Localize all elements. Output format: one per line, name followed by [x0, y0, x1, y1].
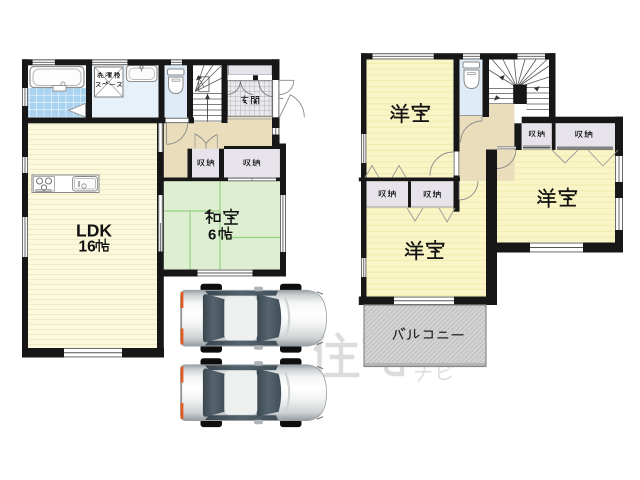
svg-text:6: 6: [208, 227, 216, 244]
svg-text:16: 16: [79, 239, 97, 256]
svg-text:LDK: LDK: [76, 221, 112, 241]
